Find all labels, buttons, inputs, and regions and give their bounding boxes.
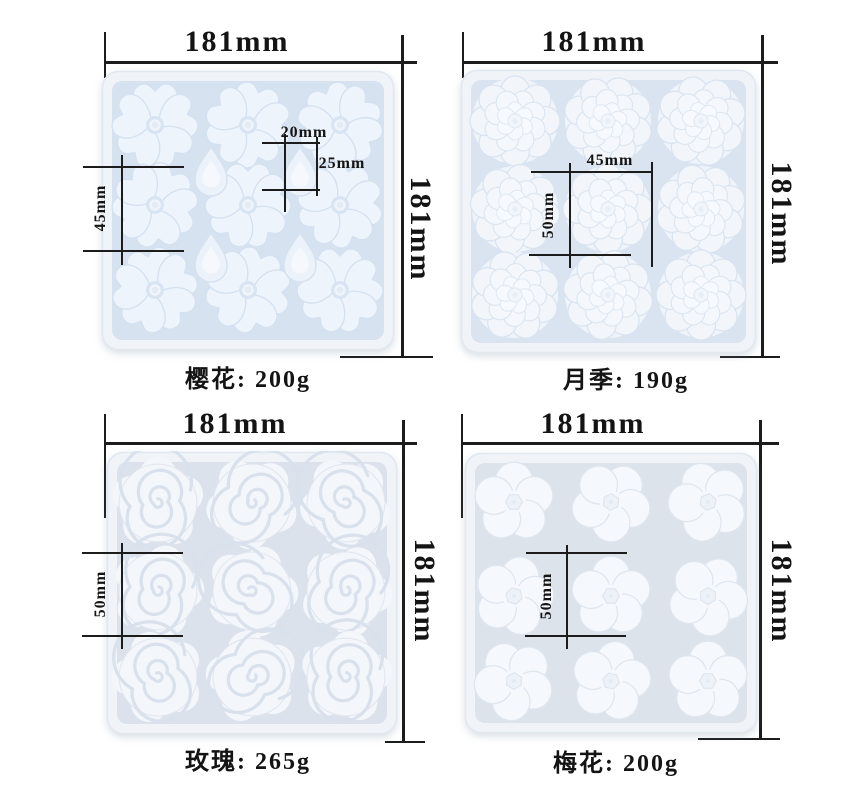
product-dimension-sheet: 181mm 181mm 45mm 20mm 25mm bbox=[0, 0, 859, 803]
dimension-tick bbox=[720, 356, 780, 358]
dimension-line-height bbox=[759, 420, 762, 740]
dimension-tick bbox=[698, 738, 780, 740]
cavity-dimension-line bbox=[121, 155, 123, 265]
flower-cavity bbox=[656, 250, 746, 340]
height-dimension-label: 181mm bbox=[409, 539, 439, 644]
dimension-tick bbox=[385, 741, 425, 743]
cavity-height-label: 50mm bbox=[93, 571, 109, 618]
cavity-dimension-line bbox=[651, 162, 653, 267]
cavity-height-label: 45mm bbox=[93, 185, 109, 232]
dimension-line-width bbox=[463, 61, 778, 64]
cavity-dimension-line bbox=[569, 163, 571, 268]
width-dimension-label: 181mm bbox=[185, 27, 290, 57]
dimension-line-width bbox=[105, 61, 417, 64]
height-dimension-label: 181mm bbox=[405, 177, 435, 282]
drop-dimension-line bbox=[262, 142, 320, 144]
height-dimension-label: 181mm bbox=[766, 539, 796, 644]
cavity-width-label: 45mm bbox=[587, 153, 634, 169]
width-dimension-label: 181mm bbox=[542, 27, 647, 57]
mold-caption: 樱花: 200g bbox=[185, 368, 311, 392]
mold-caption: 月季: 190g bbox=[563, 369, 689, 393]
height-dimension-label: 181mm bbox=[766, 162, 796, 267]
dimension-line-width bbox=[105, 442, 417, 445]
mold-photo-plum bbox=[464, 452, 758, 734]
width-dimension-label: 181mm bbox=[541, 409, 646, 439]
flower-cavity bbox=[563, 164, 653, 254]
cavity-dimension-line bbox=[83, 250, 184, 252]
cavity-height-label: 50mm bbox=[541, 192, 557, 239]
width-dimension-label: 181mm bbox=[183, 409, 288, 439]
mold-caption: 梅花: 200g bbox=[553, 752, 679, 776]
drop-width-label: 20mm bbox=[281, 125, 328, 141]
drop-height-label: 25mm bbox=[319, 156, 366, 172]
cavity-dimension-line bbox=[531, 171, 653, 173]
cavity-dimension-line bbox=[82, 635, 183, 637]
cavity-dimension-line bbox=[83, 166, 184, 168]
drop-dimension-line bbox=[262, 189, 320, 191]
dimension-tick bbox=[340, 356, 433, 358]
mold-photo-sakura bbox=[101, 70, 395, 351]
dimension-line-width bbox=[462, 442, 779, 445]
cavity-dimension-line bbox=[529, 254, 631, 256]
cavity-dimension-line bbox=[121, 543, 123, 649]
cavity-height-label: 50mm bbox=[539, 573, 555, 620]
dimension-line-height bbox=[402, 420, 405, 742]
dimension-tick bbox=[461, 414, 463, 518]
dimension-line-height bbox=[761, 35, 764, 357]
cavity-dimension-line bbox=[566, 545, 568, 649]
mold-photo-rose bbox=[106, 451, 398, 735]
mold-photo-rose-tea bbox=[460, 69, 757, 354]
cavity-dimension-line bbox=[526, 552, 627, 554]
cavity-dimension-line bbox=[82, 552, 183, 554]
drop-dimension-line bbox=[284, 134, 286, 212]
cavity-dimension-line bbox=[525, 635, 626, 637]
flower-cavity bbox=[470, 76, 560, 166]
mold-caption: 玫瑰: 265g bbox=[185, 750, 311, 774]
